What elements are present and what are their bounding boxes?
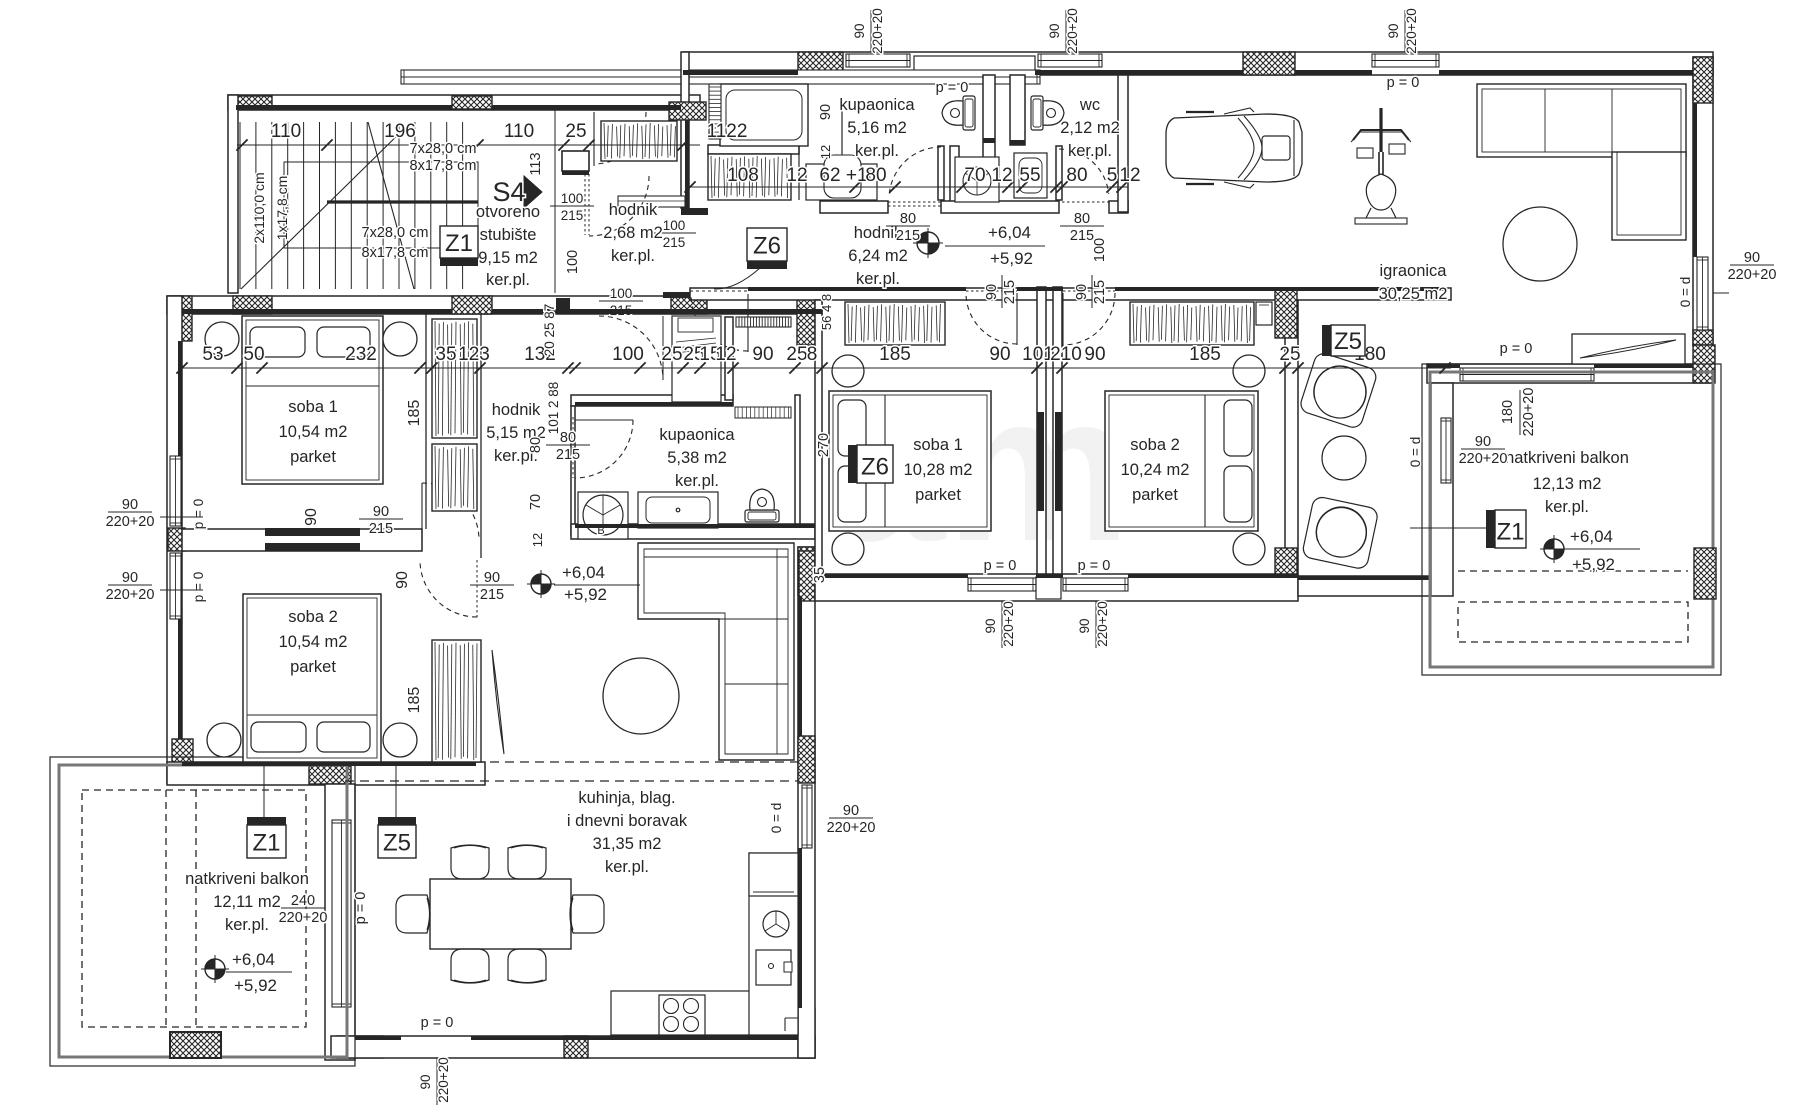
svg-text:25: 25 (565, 121, 586, 142)
svg-text:6,24 m2: 6,24 m2 (848, 247, 908, 265)
svg-text:ker.pl.: ker.pl. (486, 271, 530, 289)
svg-text:5,16 m2: 5,16 m2 (847, 119, 907, 137)
svg-text:12: 12 (530, 533, 545, 547)
svg-text:185: 185 (406, 687, 423, 714)
svg-text:101 2 88: 101 2 88 (546, 382, 561, 435)
svg-text:stubište: stubište (480, 226, 537, 244)
svg-text:50: 50 (243, 344, 264, 365)
svg-text:ker.pl.: ker.pl. (1545, 498, 1589, 516)
svg-text:parket: parket (1132, 486, 1178, 504)
svg-text:25: 25 (786, 344, 807, 365)
svg-text:240: 240 (291, 893, 315, 909)
svg-text:2,12 m2: 2,12 m2 (1060, 119, 1120, 137)
svg-text:215: 215 (480, 587, 504, 603)
svg-text:90: 90 (752, 344, 773, 365)
svg-text:5,38 m2: 5,38 m2 (667, 449, 727, 467)
svg-text:kupaonica: kupaonica (659, 426, 735, 444)
svg-text:185: 185 (879, 344, 911, 365)
svg-text:10,54 m2: 10,54 m2 (279, 633, 348, 651)
svg-text:Z6: Z6 (861, 454, 889, 481)
svg-text:70: 70 (964, 165, 985, 186)
svg-text:Z5: Z5 (1334, 328, 1362, 355)
svg-text:8: 8 (807, 344, 818, 365)
svg-text:p = 0: p = 0 (1387, 75, 1420, 91)
svg-text:70: 70 (528, 494, 544, 510)
svg-text:2x110,0 cm: 2x110,0 cm (251, 172, 267, 243)
svg-text:p = 0: p = 0 (353, 892, 369, 925)
svg-text:215: 215 (663, 235, 686, 250)
svg-text:90: 90 (1077, 618, 1092, 633)
svg-text:p = 0: p = 0 (936, 80, 969, 96)
svg-text:220+20: 220+20 (827, 820, 876, 836)
svg-text:kuhinja, blag.: kuhinja, blag. (578, 789, 675, 807)
svg-text:80: 80 (900, 211, 916, 227)
svg-text:90: 90 (418, 1074, 433, 1089)
svg-text:8x17,8 cm: 8x17,8 cm (410, 158, 477, 174)
svg-text:215: 215 (1070, 228, 1094, 244)
svg-text:ker.pl.: ker.pl. (855, 142, 899, 160)
svg-text:220+20: 220+20 (1001, 601, 1016, 646)
svg-text:90: 90 (989, 344, 1010, 365)
svg-text:90: 90 (984, 284, 1000, 300)
svg-text:90: 90 (983, 618, 998, 633)
svg-text:parket: parket (290, 658, 336, 676)
svg-text:1122: 1122 (707, 121, 748, 142)
svg-text:80: 80 (560, 430, 576, 446)
svg-text:220+20: 220+20 (106, 514, 155, 530)
svg-text:215: 215 (556, 447, 580, 463)
svg-text:ker.pl.: ker.pl. (611, 247, 655, 265)
svg-text:8x17,8 cm: 8x17,8 cm (362, 245, 429, 261)
svg-text:p = 0: p = 0 (1078, 558, 1111, 574)
svg-text:25: 25 (1279, 344, 1300, 365)
svg-text:ker.pl.: ker.pl. (856, 270, 900, 288)
svg-text:parket: parket (290, 448, 336, 466)
svg-text:ker.pl.: ker.pl. (605, 858, 649, 876)
svg-text:90: 90 (1047, 23, 1062, 38)
svg-text:80: 80 (865, 165, 886, 186)
svg-text:natkriveni balkon: natkriveni balkon (185, 870, 309, 888)
svg-text:90: 90 (394, 571, 411, 589)
svg-text:31,35 m2: 31,35 m2 (593, 835, 662, 853)
svg-text:30,25 m2: 30,25 m2 (1379, 285, 1448, 303)
svg-text:35: 35 (812, 567, 828, 583)
svg-text:natkriveni balkon: natkriveni balkon (1505, 449, 1629, 467)
svg-text:+5,92: +5,92 (1572, 555, 1615, 574)
svg-text:Z6: Z6 (753, 233, 781, 260)
svg-text:parket: parket (915, 486, 961, 504)
svg-text:56 4 8: 56 4 8 (819, 294, 834, 330)
svg-text:220+20: 220+20 (279, 910, 328, 926)
svg-text:90: 90 (1744, 250, 1760, 266)
svg-text:p = 0: p = 0 (984, 558, 1017, 574)
svg-text:12: 12 (991, 165, 1012, 186)
svg-text:p = 0: p = 0 (1500, 341, 1533, 357)
svg-text:20 25 87: 20 25 87 (542, 304, 557, 357)
svg-text:90: 90 (303, 508, 320, 526)
svg-text:12: 12 (786, 165, 807, 186)
svg-text:10,24 m2: 10,24 m2 (1121, 461, 1190, 479)
svg-text:10,54 m2: 10,54 m2 (279, 423, 348, 441)
svg-text:p = 0: p = 0 (191, 499, 206, 529)
svg-text:108: 108 (727, 165, 759, 186)
svg-text:7x28,0 cm: 7x28,0 cm (410, 141, 477, 157)
svg-text:+6,04: +6,04 (562, 563, 605, 582)
svg-text:101: 101 (1022, 344, 1054, 365)
svg-text:p = 0: p = 0 (421, 1015, 454, 1031)
svg-text:220+20: 220+20 (1521, 388, 1537, 437)
svg-text:100: 100 (612, 344, 644, 365)
svg-text:+5,92: +5,92 (990, 249, 1033, 268)
svg-text:12: 12 (818, 145, 833, 159)
svg-text:hodnik: hodnik (609, 201, 658, 219)
svg-text:196: 196 (384, 121, 416, 142)
svg-text:80: 80 (1066, 165, 1087, 186)
svg-text:220+20: 220+20 (106, 587, 155, 603)
svg-text:0 = d: 0 = d (1678, 277, 1693, 307)
svg-text:25: 25 (661, 344, 682, 365)
svg-text:soba 1: soba 1 (913, 436, 963, 454)
svg-text:80: 80 (1074, 211, 1090, 227)
svg-text:53: 53 (202, 344, 223, 365)
svg-text:12,13 m2: 12,13 m2 (1533, 475, 1602, 493)
svg-text:100: 100 (663, 218, 686, 233)
svg-text:210: 210 (1050, 344, 1082, 365)
svg-text:90: 90 (484, 570, 500, 586)
svg-text:180: 180 (1500, 400, 1516, 424)
svg-text:2,68 m2: 2,68 m2 (603, 224, 663, 242)
svg-text:1x17,8 cm: 1x17,8 cm (274, 176, 290, 241)
svg-text:+6,04: +6,04 (232, 950, 275, 969)
svg-text:220+20: 220+20 (436, 1057, 451, 1102)
svg-text:62: 62 (819, 165, 840, 186)
svg-text:soba 2: soba 2 (288, 608, 338, 626)
svg-text:215: 215 (1002, 280, 1018, 304)
svg-text:215: 215 (896, 228, 920, 244)
svg-text:soba 2: soba 2 (1130, 436, 1180, 454)
svg-text:0 = d: 0 = d (1408, 437, 1423, 467)
svg-text:5: 5 (1107, 165, 1118, 186)
svg-text:p = 0: p = 0 (191, 572, 206, 602)
svg-text:80: 80 (528, 437, 544, 453)
svg-text:113: 113 (528, 152, 544, 175)
svg-text:220+20: 220+20 (870, 8, 885, 53)
svg-text:220+20: 220+20 (1065, 8, 1080, 53)
svg-text:100: 100 (561, 191, 584, 206)
svg-text:100: 100 (610, 286, 633, 301)
svg-text:igraonica: igraonica (1380, 262, 1448, 280)
svg-text:10,28 m2: 10,28 m2 (904, 461, 973, 479)
svg-text:90: 90 (1084, 344, 1105, 365)
svg-text:12,11 m2: 12,11 m2 (213, 893, 281, 911)
svg-text:100: 100 (1092, 238, 1108, 262)
svg-text:100: 100 (565, 250, 581, 274)
svg-text:90: 90 (1386, 23, 1401, 38)
svg-text:otvoreno: otvoreno (476, 203, 540, 221)
svg-text:i dnevni boravak: i dnevni boravak (567, 812, 688, 830)
svg-text:123: 123 (458, 344, 490, 365)
svg-text:wc: wc (1079, 96, 1100, 114)
svg-text:+5,92: +5,92 (564, 585, 607, 604)
svg-text:215: 215 (1092, 280, 1108, 304)
svg-text:+6,04: +6,04 (988, 223, 1031, 242)
svg-text:soba 1: soba 1 (288, 398, 338, 416)
svg-text:ker.pl.: ker.pl. (1068, 142, 1112, 160)
svg-text:+5,92: +5,92 (234, 976, 277, 995)
svg-text:90: 90 (373, 504, 389, 520)
svg-text:90: 90 (122, 570, 138, 586)
svg-text:9,15 m2: 9,15 m2 (478, 249, 538, 267)
svg-text:220+20: 220+20 (1095, 601, 1110, 646)
svg-text:Z1: Z1 (252, 830, 280, 857)
svg-text:Z1: Z1 (1496, 519, 1524, 546)
svg-text:Z5: Z5 (383, 830, 411, 857)
svg-text:12: 12 (715, 344, 736, 365)
svg-text:12: 12 (1119, 165, 1140, 186)
svg-text:185: 185 (1189, 344, 1221, 365)
svg-text:110: 110 (504, 121, 534, 142)
svg-text:Z1: Z1 (445, 230, 473, 257)
svg-text:7x28,0 cm: 7x28,0 cm (362, 225, 429, 241)
svg-text:90: 90 (843, 803, 859, 819)
svg-text:35: 35 (435, 344, 456, 365)
svg-text:90: 90 (1475, 434, 1491, 450)
svg-text:220+20: 220+20 (1728, 267, 1777, 283)
svg-text:90: 90 (852, 23, 867, 38)
svg-text:90: 90 (818, 104, 834, 120)
svg-text:232: 232 (345, 344, 377, 365)
svg-text:215: 215 (561, 208, 584, 223)
svg-text:220+20: 220+20 (1459, 451, 1508, 467)
svg-text:kupaonica: kupaonica (839, 96, 915, 114)
svg-text:+6,04: +6,04 (1570, 527, 1613, 546)
svg-text:90: 90 (1074, 284, 1090, 300)
svg-text:0 = d: 0 = d (769, 803, 784, 833)
svg-text:220+20: 220+20 (1404, 8, 1419, 53)
svg-text:ker.pl.: ker.pl. (675, 472, 719, 490)
svg-text:ker.pl.: ker.pl. (225, 916, 269, 934)
svg-text:270: 270 (816, 433, 832, 457)
svg-text:215: 215 (369, 521, 393, 537)
svg-text:55: 55 (1019, 165, 1040, 186)
svg-text:185: 185 (406, 400, 423, 427)
svg-text:hodnik: hodnik (492, 401, 541, 419)
svg-text:110: 110 (271, 121, 301, 142)
svg-text:90: 90 (122, 497, 138, 513)
